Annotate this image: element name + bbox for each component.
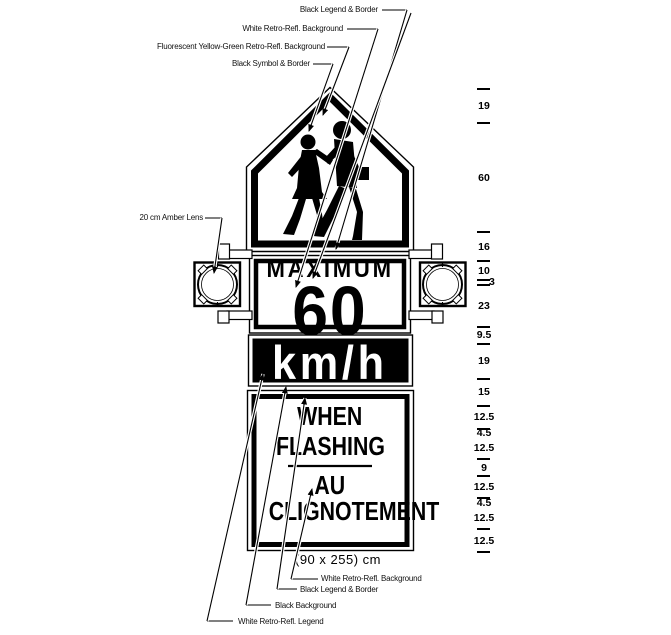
beacon-left-coupler-top	[219, 244, 230, 259]
dimension-value: 23	[468, 300, 500, 312]
label-fluorescent-yellow-green-background: Fluorescent Yellow-Green Retro-Refl. Bac…	[157, 42, 325, 51]
dimension-value: 10	[468, 265, 500, 277]
beacon-right-pipe-bottom	[409, 311, 434, 320]
dimension-value: 16	[468, 241, 500, 253]
dimension-tick	[477, 231, 490, 233]
beacon-left-pipe-top	[227, 250, 252, 259]
dimension-value: 4.5	[468, 427, 500, 439]
dimension-value: 15	[468, 386, 500, 398]
dimension-tick	[477, 122, 490, 124]
label-black-legend-border-bottom: Black Legend & Border	[300, 585, 378, 594]
dimension-tick	[477, 326, 490, 328]
dimension-value: 9	[468, 462, 500, 474]
dimension-value: 60	[468, 172, 500, 184]
flash-line-clignotement: CLIGNOTEMENT	[250, 498, 410, 524]
label-white-retro-background-top: White Retro-Refl. Background	[242, 24, 343, 33]
dimension-value: 3	[489, 276, 503, 288]
dimension-value: 19	[468, 355, 500, 367]
dimension-value: 12.5	[468, 512, 500, 524]
label-white-retro-background-bottom: White Retro-Refl. Background	[321, 574, 422, 583]
beacon-left-coupler-bottom	[218, 311, 229, 323]
dimension-value: 12.5	[468, 535, 500, 547]
pentagon-sign	[247, 88, 414, 252]
dimension-value: 4.5	[468, 497, 500, 509]
flash-line-when: WHEN	[250, 403, 410, 429]
label-black-legend-border-top: Black Legend & Border	[300, 5, 378, 14]
dimension-tick	[477, 528, 490, 530]
dimension-tick	[477, 458, 490, 460]
sign-size-note: (90 x 255) cm	[288, 552, 388, 567]
label-white-retro-legend: White Retro-Refl. Legend	[238, 617, 323, 626]
label-black-background: Black Background	[275, 601, 336, 610]
dimension-tick	[477, 405, 490, 407]
dimension-value: 12.5	[468, 411, 500, 423]
beacon-right-pipe-top	[409, 250, 434, 259]
dimension-value: 12.5	[468, 442, 500, 454]
beacon-left-pipe-bottom	[227, 311, 252, 320]
unit-panel-text: km/h	[250, 339, 410, 386]
dimension-tick	[477, 551, 490, 553]
sign-specification-diagram: MAXIMUM 60 km/h WHEN FLASHING AU CLIGNOT…	[0, 0, 671, 635]
dimension-value: 9.5	[468, 329, 500, 341]
dimension-tick	[477, 343, 490, 345]
label-black-symbol-border: Black Symbol & Border	[232, 59, 310, 68]
dimension-tick	[477, 475, 490, 477]
flash-line-flashing: FLASHING	[250, 433, 410, 459]
dimension-tick	[477, 378, 490, 380]
dimension-value: 12.5	[468, 481, 500, 493]
label-amber-lens: 20 cm Amber Lens	[140, 213, 204, 222]
flash-line-au: AU	[250, 472, 410, 498]
dimension-tick	[477, 88, 490, 90]
dimension-tick	[477, 260, 490, 262]
beacon-left	[195, 244, 253, 323]
beacon-right	[409, 244, 466, 323]
beacon-right-coupler-bottom	[432, 311, 443, 323]
beacon-right-coupler-top	[432, 244, 443, 259]
dimension-value: 19	[468, 100, 500, 112]
